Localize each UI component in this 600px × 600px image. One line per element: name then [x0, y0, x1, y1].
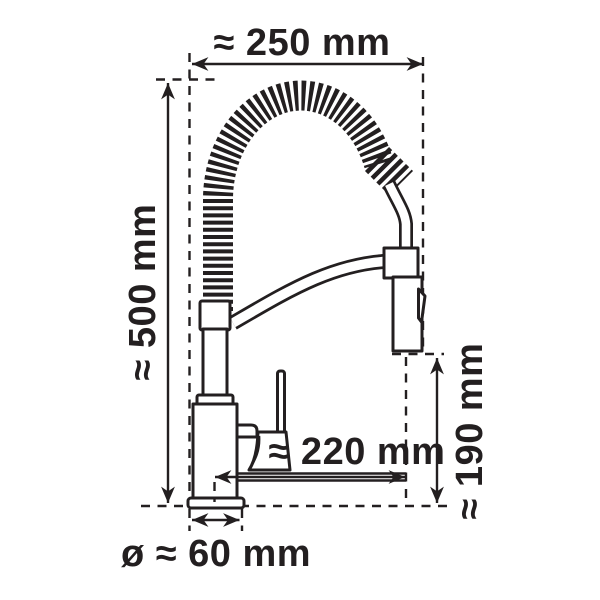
faucet-neck [203, 329, 227, 396]
faucet-dimension-diagram: ≈ 250 mm ≈ 500 mm ≈ 220 mm ≈ 190 mm ø ≈ … [0, 0, 600, 600]
handle-step [237, 425, 257, 437]
label-outlet-clearance: ≈ 190 mm [449, 343, 491, 520]
base-plate [188, 498, 244, 508]
spring-retainer [200, 301, 230, 330]
label-overall-width: ≈ 250 mm [214, 22, 391, 64]
spray-trigger [419, 289, 426, 322]
dimension-labels: ≈ 250 mm ≈ 500 mm ≈ 220 mm ≈ 190 mm ø ≈ … [121, 22, 491, 575]
label-overall-height: ≈ 500 mm [122, 204, 164, 381]
handle-rod [278, 371, 285, 433]
label-spout-reach: ≈ 220 mm [269, 431, 446, 473]
diagram-canvas: ≈ 250 mm ≈ 500 mm ≈ 220 mm ≈ 190 mm ø ≈ … [0, 0, 600, 600]
label-base-diameter: ø ≈ 60 mm [121, 533, 311, 575]
spray-head-holder [384, 248, 418, 278]
